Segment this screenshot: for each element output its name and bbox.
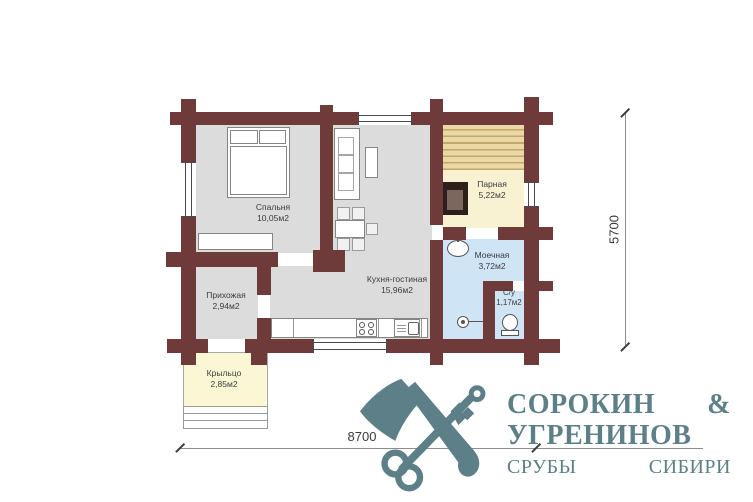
chair [352,238,365,251]
sofa-cushion [338,173,354,191]
window-top [358,112,412,125]
room-name: Спальня [233,202,313,213]
room-name: С/у [479,288,539,298]
window-bottom [313,339,387,353]
room-area: 15,96м2 [347,285,447,296]
dining-table [335,220,365,238]
burner [359,329,365,335]
dimension-height-label: 5700 [607,208,622,252]
room-area: 1,17м2 [479,298,539,308]
axe-and-key-emblem [345,372,495,496]
chair [366,223,378,235]
kitchen-sink [394,319,420,337]
room-name: Кухня-гостиная [347,274,447,285]
wall-junction-block [313,250,345,272]
room-area: 2,85м2 [184,379,264,390]
room-area: 3,72м2 [452,261,532,272]
room-area: 10,05м2 [233,213,313,224]
room-label-wc: С/у 1,17м2 [479,288,539,309]
sink-basin [408,322,419,335]
burner [368,322,374,328]
floor-plan-page: Спальня 10,05м2 Кухня-гостиная 15,96м2 П… [0,0,753,502]
tv-stand [365,147,378,178]
mattress [230,146,287,195]
counter-divider [293,319,294,337]
cooktop [356,319,377,337]
room-area: 5,22м2 [452,190,532,201]
dimension-line-vertical [625,113,626,347]
company-logo: СОРОКИН & УГРЕНИНОВ СРУБЫ СИБИРИ [340,370,745,498]
sofa [334,128,360,200]
floor-drain-dot [461,320,465,324]
wall-bedroom-kitchen [320,105,333,252]
room-name: Парная [452,179,532,190]
porch-step [183,420,268,429]
wall-hallway-right [257,318,271,339]
counter-divider [421,319,422,337]
logo-line-3: СРУБЫ СИБИРИ [507,455,731,479]
room-label-washroom: Моечная 3,72м2 [452,250,532,272]
sofa-cushion [338,137,354,155]
wall-left [181,99,196,162]
wall-right [524,97,539,182]
wall-sauna-washroom [443,227,466,240]
sauna-benches [442,124,525,170]
burner [368,329,374,335]
counter-divider [378,319,379,337]
wall-sauna-washroom [498,227,553,240]
logo-text: СОРОКИН & УГРЕНИНОВ СРУБЫ СИБИРИ [507,390,731,479]
chair [337,207,350,220]
burner [359,322,365,328]
room-label-kitchen-living: Кухня-гостиная 15,96м2 [347,274,447,296]
room-label-porch: Крыльцо 2,85м2 [184,368,264,390]
room-name: Прихожая [186,290,266,301]
toilet-bowl [502,314,518,331]
wall-kitchen-sauna [430,240,443,365]
room-name: Крыльцо [184,368,264,379]
axe-icon [360,379,479,477]
room-name: Моечная [452,250,532,261]
room-area: 2,94м2 [186,301,266,312]
toilet-tank [501,330,519,336]
wall-wc-top [539,281,553,291]
sofa-cushion [338,155,354,173]
sink-drainboard [397,323,406,334]
room-label-bedroom: Спальня 10,05м2 [233,202,313,224]
room-label-hallway: Прихожая 2,94м2 [186,290,266,312]
bed [227,127,290,198]
bedroom-cabinet [198,233,273,250]
room-label-sauna: Парная 5,22м2 [452,179,532,201]
logo-line-1: СОРОКИН & [507,390,731,421]
wall-kitchen-sauna [430,99,443,225]
window-left [181,162,196,217]
logo-line-2: УГРЕНИНОВ [507,421,731,452]
pillow [230,130,258,144]
shower-partition-line [469,321,483,322]
pillow [259,130,286,144]
wall-porch-stub [251,339,267,365]
chair [352,207,365,220]
